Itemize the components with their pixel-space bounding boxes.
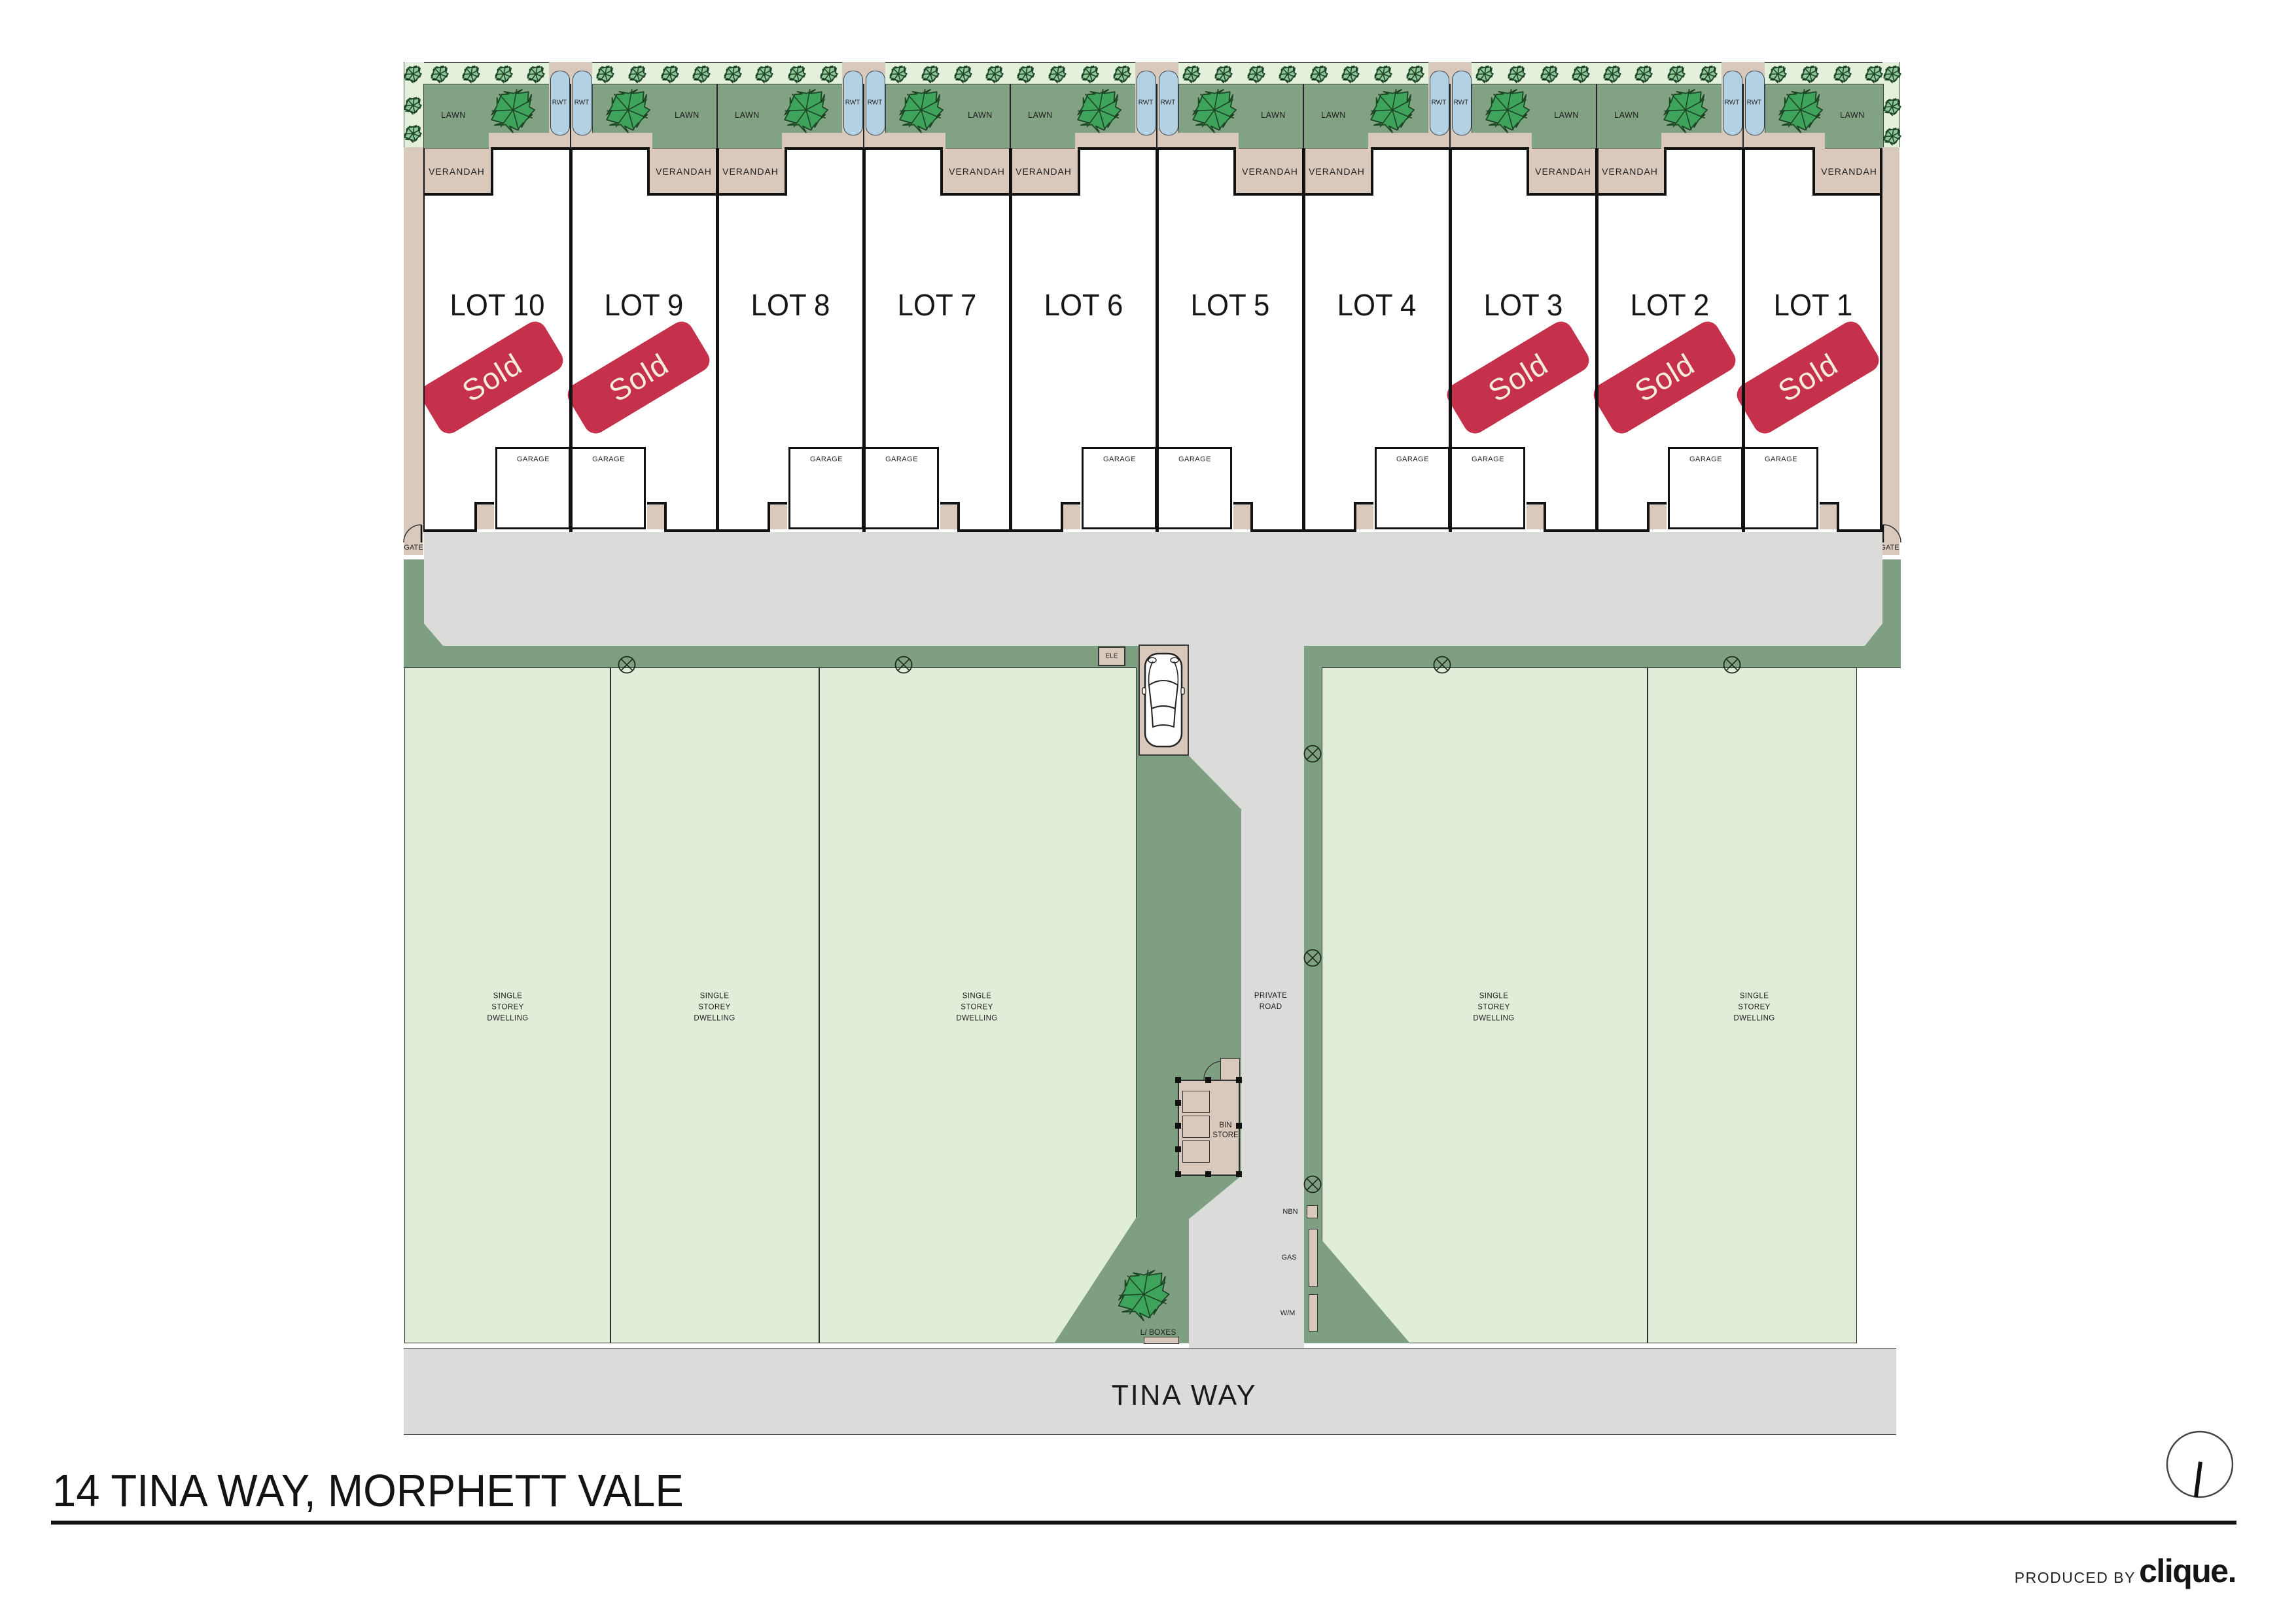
bin-store-label: BINSTORE [1212,1121,1238,1140]
wall [1743,147,1815,150]
lot-boundary-line [1156,84,1157,149]
lawn-tree-icon [1076,86,1123,133]
wall [940,193,1010,196]
rainwater-tank-label: RWT [1747,99,1762,107]
wm-label: W/M [1280,1309,1296,1317]
site-plan: RWTRWTLAWNLAWNVERANDAHVERANDAHGARAGEGARA… [0,0,2296,1624]
hedge-tree-icon [1113,65,1131,83]
lot-boundary-wall [1595,149,1598,542]
lawn-tree-icon [605,86,652,133]
neighbour-dwelling-label-line: SINGLE [694,991,735,1002]
lot-label: LOT 9 [605,287,684,323]
lot-boundary-line [716,84,718,149]
lot-boundary-line [1010,84,1011,149]
wall [1233,193,1303,196]
porch [1354,502,1373,529]
street-tree-icon [1116,1267,1171,1322]
neighbour-dwelling-label-line: SINGLE [1733,991,1775,1002]
light-pole-icon [617,655,637,675]
lot-label: LOT 2 [1631,287,1710,323]
hedge-tree-icon [1883,65,1901,83]
hedge-tree-icon [1341,65,1360,83]
lawn-label: LAWN [1614,111,1639,120]
lot-boundary-wall [1156,149,1159,542]
hedge-tree-icon [1883,97,1901,116]
hedge-tree-icon [527,65,545,83]
hedge-tree-icon [1374,65,1392,83]
verandah-label: VERANDAH [722,166,779,177]
hedge-tree-icon [1572,65,1590,83]
porch [1647,502,1667,529]
lot-boundary-wall [716,149,719,542]
neighbour-dwelling-label: SINGLESTOREYDWELLING [694,991,735,1025]
front-path-notch [592,133,652,149]
wall [1812,149,1815,194]
gate-swing-icon [402,523,425,544]
hedge-tree-icon [1833,65,1852,83]
wall [1664,149,1667,194]
hedge-tree-icon [889,65,908,83]
wall [1010,193,1080,196]
lawn-tree-icon [489,86,537,133]
rainwater-tank-label: RWT [1454,99,1469,107]
lot-label: LOT 4 [1337,287,1417,323]
front-path-notch [1765,133,1825,149]
bin-store-label-line: BIN [1212,1121,1238,1131]
wall [940,149,943,194]
wall [864,147,943,150]
hedge-tree-icon [404,124,422,143]
neighbour-dwelling-label-line: STOREY [487,1002,528,1014]
side-path-right [1882,147,1899,555]
letter-boxes-label: L/ BOXES [1140,1328,1176,1337]
light-pole-icon [1722,655,1742,675]
hedge-tree-icon [1603,65,1621,83]
water-meter [1309,1294,1318,1332]
hedge-tree-icon [404,65,422,83]
gate-label: GATE [1880,544,1899,552]
wall [1371,149,1373,194]
light-pole-icon [894,655,913,675]
ele-label: ELE [1106,653,1118,660]
verandah-label: VERANDAH [1821,166,1877,177]
wall [1527,149,1529,194]
hedge-tree-icon [1667,65,1686,83]
hedge-tree-icon [1883,127,1901,145]
neighbour-dwelling-label: SINGLESTOREYDWELLING [1733,991,1775,1025]
wall [1078,149,1080,194]
rainwater-tank-label: RWT [552,99,567,107]
front-path-notch [489,133,549,149]
bin [1182,1116,1210,1138]
porch [940,502,960,529]
lot-boundary-line [1303,84,1304,149]
neighbour-dwelling-label-line: STOREY [694,1002,735,1014]
lawn-label: LAWN [1554,111,1579,120]
garage-label: GARAGE [810,455,843,463]
lawn-label: LAWN [441,111,466,120]
title-underline [51,1521,2236,1525]
front-path-notch [1472,133,1532,149]
hedge-tree-icon [1247,65,1265,83]
garage-label: GARAGE [1472,455,1504,463]
bin [1182,1091,1210,1113]
verge-band-left [404,646,1139,668]
hedge-tree-icon [462,65,480,83]
lot-label: LOT 5 [1191,287,1270,323]
wall [1078,147,1157,150]
neighbour-dwelling-label-line: DWELLING [1733,1014,1775,1025]
lot-label: LOT 1 [1773,287,1852,323]
nbn-pit [1307,1205,1318,1218]
wall [717,193,787,196]
bin-store-post [1236,1077,1242,1083]
hedge-tree-icon [1769,65,1787,83]
lawn-tree-icon [1191,86,1238,133]
bin-store-post [1175,1100,1181,1106]
gate-label: GATE [404,544,423,552]
rainwater-tank-label: RWT [868,99,883,107]
wall [1527,193,1597,196]
hedge-tree-icon [692,65,711,83]
hedge-tree-icon [921,65,940,83]
hedge-tree-icon [1801,65,1819,83]
garage-label: GARAGE [1765,455,1797,463]
wall [647,149,650,194]
wall [1812,193,1882,196]
hedge-tree-icon [1017,65,1035,83]
lot-boundary-line [1449,84,1451,149]
nbn-label: NBN [1282,1208,1298,1216]
hedge-tree-icon [1865,65,1883,83]
private-road-label-line: ROAD [1254,1002,1287,1013]
gas-main [1309,1229,1318,1287]
verandah-label: VERANDAH [1309,166,1365,177]
front-path-notch [885,133,945,149]
bin-store-post [1175,1171,1181,1177]
hedge-tree-icon [1699,65,1718,83]
lawn-tree-icon [783,86,830,133]
street-name-label: TINA WAY [1112,1379,1257,1412]
hedge-tree-icon [431,65,449,83]
lot-label: LOT 8 [751,287,830,323]
lawn-tree-icon [1369,86,1416,133]
lot-boundary-wall [1009,149,1012,542]
lawn-label: LAWN [1261,111,1286,120]
front-path-notch [1075,133,1135,149]
hedge-tree-icon [1081,65,1099,83]
verge-band-right [1304,646,1901,668]
lot-boundary-wall [1302,149,1305,542]
porch [647,502,667,529]
wall [1664,147,1743,150]
garage-label: GARAGE [592,455,625,463]
hedge-tree-icon [1182,65,1201,83]
private-road-label-line: PRIVATE [1254,991,1287,1002]
visitor-car-icon [1142,651,1184,749]
porch [474,502,494,529]
lot-label: LOT 6 [1044,287,1123,323]
verandah-label: VERANDAH [1016,166,1072,177]
verandah-label: VERANDAH [949,166,1005,177]
neighbour-dwelling-label-line: DWELLING [1473,1014,1514,1025]
wall [1450,147,1529,150]
lawn-label: LAWN [1840,111,1865,120]
neighbour-dwelling-label-line: SINGLE [1473,991,1514,1002]
neighbour-dwelling-label: SINGLESTOREYDWELLING [487,991,528,1025]
lot-boundary-line [1742,84,1744,149]
north-arrow-icon [2161,1425,2239,1504]
verandah-label: VERANDAH [656,166,712,177]
lot-boundary-line [863,84,864,149]
front-path-notch [1178,133,1239,149]
side-path-left [404,147,423,555]
lawn-tree-icon [1662,86,1709,133]
produced-by-label: PRODUCED BY [2015,1569,2136,1587]
lot-label: LOT 7 [898,287,977,323]
gate-swing-icon [1879,523,1902,544]
hedge-tree-icon [596,65,614,83]
hedge-tree-icon [820,65,838,83]
wall [1597,193,1667,196]
hedge-tree-icon [495,65,513,83]
lawn-tree-icon [1777,86,1824,133]
porch [1527,502,1546,529]
bin-store-post [1205,1171,1211,1177]
wall [1233,149,1236,194]
porch [1233,502,1253,529]
rainwater-tank-label: RWT [1725,99,1740,107]
bin-store-post [1236,1171,1242,1177]
neighbour-dwelling-label-line: SINGLE [956,991,997,1002]
light-pole-icon [1432,655,1452,675]
lawn-tree-icon [1484,86,1531,133]
hedge-tree-icon [628,65,646,83]
letter-boxes [1144,1337,1179,1344]
bin-store-post [1175,1146,1181,1152]
wall [647,193,717,196]
bin-store-post [1175,1077,1181,1083]
porch [1061,502,1080,529]
hedge-tree-icon [661,65,679,83]
page-title: 14 TINA WAY, MORPHETT VALE [52,1464,684,1517]
porch [768,502,787,529]
front-path-notch [782,133,842,149]
hedge-tree-icon [1406,65,1424,83]
wall [1157,147,1236,150]
lot-boundary-line [1596,84,1597,149]
neighbour-dwelling-label-line: STOREY [1473,1002,1514,1014]
light-pole-icon [1303,744,1322,764]
wall [571,147,650,150]
light-pole-icon [1303,948,1322,968]
wall [1371,147,1450,150]
wall [1303,193,1373,196]
hedge-tree-icon [1634,65,1653,83]
hedge-tree-icon [1214,65,1233,83]
lawn-tree-icon [898,86,945,133]
hedge-tree-icon [954,65,972,83]
hedge-tree-icon [724,65,742,83]
lot-boundary-wall [1449,149,1452,542]
light-pole-icon [1303,1174,1322,1194]
neighbour-dwelling-label-line: DWELLING [694,1014,735,1025]
verandah-label: VERANDAH [429,166,485,177]
wall [491,149,493,194]
garage-label: GARAGE [517,455,550,463]
neighbour-dwelling-label-line: SINGLE [487,991,528,1002]
wall [423,193,493,196]
bin-store-label-line: STORE [1212,1131,1238,1140]
garage-label: GARAGE [1396,455,1429,463]
lot-boundary-wall [569,149,573,542]
hedge-tree-icon [1048,65,1067,83]
rainwater-tank-label: RWT [1139,99,1154,107]
front-path-notch [1368,133,1428,149]
neighbour-dwelling-label: SINGLESTOREYDWELLING [1473,991,1514,1025]
rainwater-tank-label: RWT [1161,99,1176,107]
bin-store-post [1175,1123,1181,1129]
hedge-tree-icon [788,65,806,83]
hedge-tree-icon [404,96,422,115]
hedge-tree-icon [985,65,1004,83]
lot-boundary-wall [862,149,866,542]
lawn-label: LAWN [675,111,699,120]
lawn-label: LAWN [968,111,993,120]
lawn-label: LAWN [735,111,760,120]
hedge-tree-icon [755,65,773,83]
lot-label: LOT 10 [450,287,544,323]
hedge-tree-icon [1475,65,1494,83]
neighbour-dwelling-label-line: DWELLING [956,1014,997,1025]
garage-label: GARAGE [1689,455,1722,463]
neighbour-dwelling-label-line: STOREY [956,1002,997,1014]
porch [1820,502,1839,529]
verandah-label: VERANDAH [1535,166,1591,177]
wall [785,147,864,150]
hedge-tree-icon [1508,65,1526,83]
wall [491,147,571,150]
bin-store-post [1205,1077,1211,1083]
wall [785,149,787,194]
rainwater-tank-label: RWT [1432,99,1447,107]
neighbour-dwelling-label: SINGLESTOREYDWELLING [956,991,997,1025]
lot-boundary-wall [1742,149,1745,542]
hedge-tree-icon [1310,65,1328,83]
front-path-notch [1661,133,1722,149]
verandah-label: VERANDAH [1602,166,1658,177]
bin [1182,1140,1210,1163]
garage-label: GARAGE [1178,455,1211,463]
garage-label: GARAGE [885,455,918,463]
hedge-tree-icon [1540,65,1559,83]
neighbour-dwelling-label-line: DWELLING [487,1014,528,1025]
gas-label: GAS [1281,1254,1296,1262]
lot-boundary-line [570,84,571,149]
neighbour-dwelling-label-line: STOREY [1733,1002,1775,1014]
lawn-label: LAWN [1321,111,1346,120]
lot-label: LOT 3 [1484,287,1563,323]
lawn-label: LAWN [1028,111,1053,120]
rainwater-tank-label: RWT [574,99,590,107]
rainwater-tank-label: RWT [845,99,860,107]
private-road-label: PRIVATEROAD [1254,991,1287,1013]
garage-label: GARAGE [1103,455,1136,463]
hedge-tree-icon [1279,65,1297,83]
brand-logo: clique. [2139,1552,2236,1590]
verandah-label: VERANDAH [1242,166,1298,177]
